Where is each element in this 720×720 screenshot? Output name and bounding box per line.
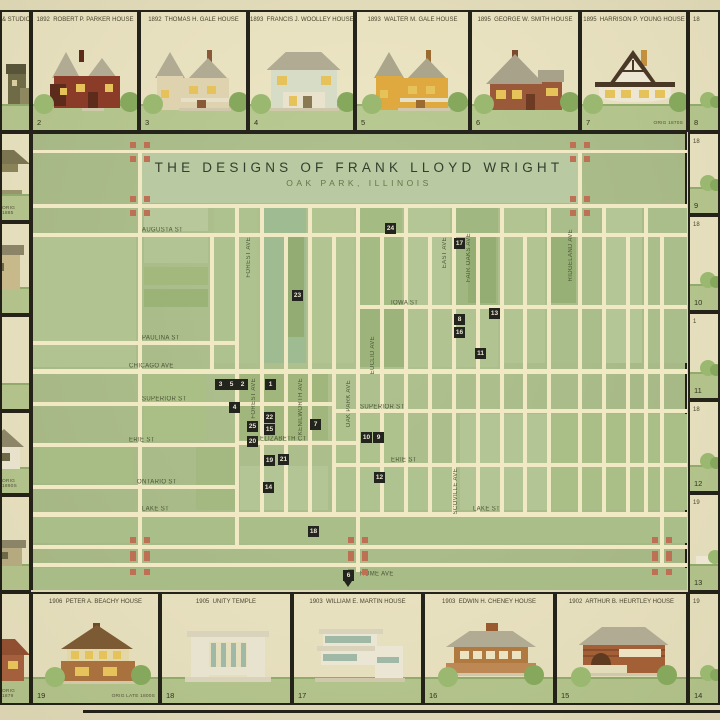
street [578, 150, 582, 516]
house-part [708, 550, 720, 564]
house-illustration [183, 623, 273, 687]
corner-ornament [652, 569, 658, 575]
corner-ornament [570, 196, 576, 202]
house-part [710, 669, 720, 681]
street [33, 545, 687, 549]
house-marker-19: 19 [264, 455, 275, 466]
house-part [34, 94, 54, 114]
street [428, 233, 432, 514]
cell-number: 5 [361, 118, 365, 127]
house-part [710, 457, 720, 469]
street [210, 233, 214, 373]
house-part [380, 90, 388, 98]
street-label: RIDGELAND AVE [568, 229, 574, 281]
cell-4: 1893 FRANCIS J. WOOLLEY HOUSE4 [248, 10, 355, 132]
house-marker-17: 17 [454, 238, 465, 249]
house-illustration [2, 413, 31, 477]
city-block [144, 373, 206, 440]
street-label: FAIR OAKS AVE [466, 233, 472, 282]
house-part [52, 52, 80, 78]
house-marker-7: 7 [310, 419, 321, 430]
house-caption: 19 [693, 599, 718, 605]
cell-19: 1906 PETER A. BEACHY HOUSE19ORIG LATE 18… [31, 592, 160, 705]
house-part [0, 351, 1, 365]
house-part [189, 86, 198, 94]
house-part [560, 92, 580, 112]
cell-3: 1892 THOMAS H. GALE HOUSE3 [139, 10, 248, 132]
house-part [269, 108, 339, 111]
house-marker-8: 8 [454, 314, 465, 325]
cell-note: ORIG LATE 1800S [112, 694, 155, 699]
corner-ornament [144, 569, 150, 575]
house-part [0, 639, 30, 655]
house-part [655, 90, 665, 98]
house-part [408, 86, 417, 94]
house-illustration [690, 230, 720, 294]
house-caption: 18 [693, 17, 718, 23]
house-part [499, 651, 508, 659]
corner-ornament [584, 196, 590, 202]
house-illustration [151, 50, 241, 114]
title-band: THE DESIGNS OF FRANK LLOYD WRIGHT OAK PA… [140, 153, 578, 203]
city-block [648, 208, 687, 363]
house-part [277, 76, 287, 85]
house-part [120, 92, 139, 112]
city-block [196, 447, 235, 510]
corner-ornament [584, 210, 590, 216]
corner-ornament [584, 156, 590, 162]
house-part [512, 90, 522, 99]
corner-ornament [144, 196, 150, 202]
house-part [486, 54, 544, 84]
street [33, 150, 687, 153]
house-part [105, 84, 113, 92]
cell-14: 1914 [688, 592, 720, 705]
cell-18: 1905 UNITY TEMPLE18 [160, 592, 292, 705]
house-part [571, 667, 591, 687]
house-part [446, 631, 536, 647]
house-part [231, 643, 236, 667]
cell-number: 19 [37, 691, 45, 700]
house-part [583, 94, 603, 114]
house-illustration [690, 510, 720, 574]
cell-number: 7 [586, 118, 590, 127]
house-illustration [591, 50, 681, 114]
house-marker-25: 25 [247, 421, 258, 432]
house-part [337, 92, 356, 112]
house-marker-14: 14 [263, 482, 274, 493]
street-label: FOREST AVE [246, 237, 252, 278]
house-part [377, 657, 399, 663]
house-caption: & STUDIO [2, 17, 27, 23]
cell-note: ORIG 1879 [2, 689, 26, 699]
street-label: KENILWORTH AVE [298, 378, 304, 435]
street [332, 463, 687, 467]
house-marker-18: 18 [308, 526, 319, 537]
house-part [45, 667, 65, 687]
bottom-edge-line [83, 710, 720, 713]
corner-ornament [130, 156, 136, 162]
house-part [323, 654, 357, 661]
cell-10: 1810 [688, 215, 720, 312]
street [404, 204, 408, 514]
cell-number: 11 [694, 386, 702, 395]
house-part [57, 681, 139, 684]
cell-l1: ORIG 1885 [0, 132, 31, 222]
street-label: IOWA ST [391, 300, 418, 307]
city-block [144, 237, 208, 263]
house-marker-1: 1 [265, 379, 276, 390]
house-part [374, 52, 404, 78]
cell-5: 1893 WALTER M. GALE HOUSE5 [355, 10, 470, 132]
house-part [2, 453, 10, 461]
house-marker-10: 10 [361, 432, 372, 443]
cell-l4: ORIG 1890S [0, 411, 31, 495]
cell-number: 17 [298, 691, 306, 700]
house-caption: 1902 ARTHUR B. HEURTLEY HOUSE [557, 599, 686, 605]
cell-l3 [0, 315, 31, 411]
street [626, 233, 630, 514]
street [500, 204, 504, 514]
cell-13: 1913 [688, 493, 720, 592]
house-part [251, 94, 271, 114]
cell-number: 6 [476, 118, 480, 127]
house-part [376, 76, 402, 86]
house-part [315, 678, 405, 682]
house-part [486, 651, 495, 659]
house-marker-21: 21 [278, 454, 289, 465]
city-block [468, 237, 496, 303]
corner-ornament [570, 142, 576, 148]
house-marker-3: 3 [215, 379, 226, 390]
house-illustration [0, 329, 31, 393]
cell-number: 2 [37, 118, 41, 127]
house-caption: 1895 HARRISON P. YOUNG HOUSE [582, 17, 686, 23]
house-illustration [690, 50, 720, 114]
cell-2: 1892 ROBERT P. PARKER HOUSE2 [31, 10, 139, 132]
corner-ornament [666, 569, 672, 575]
house-part [0, 552, 8, 559]
house-caption: 1892 THOMAS H. GALE HOUSE [141, 17, 246, 23]
house-part [0, 263, 4, 271]
house-part [321, 76, 331, 85]
corner-ornament [130, 210, 136, 216]
cell-number: 10 [694, 298, 702, 307]
house-marker-12: 12 [374, 472, 385, 483]
cell-number: 8 [694, 118, 698, 127]
cell-15: 1902 ARTHUR B. HEURTLEY HOUSE15 [555, 592, 688, 705]
street [138, 150, 142, 567]
city-block [33, 445, 133, 483]
street [547, 204, 551, 514]
house-part [486, 623, 498, 631]
house-part [438, 667, 458, 687]
cell-l2 [0, 222, 31, 315]
house-caption: 1905 UNITY TEMPLE [162, 599, 290, 605]
house-part [82, 108, 104, 111]
street [284, 233, 288, 514]
city-block [33, 237, 136, 367]
cell-studio: & STUDIO [0, 10, 31, 132]
poster: THE DESIGNS OF FRANK LLOYD WRIGHT OAK PA… [0, 0, 720, 720]
house-caption: 18 [693, 407, 718, 413]
street [356, 512, 360, 572]
house-part [187, 58, 229, 80]
house-part [289, 96, 297, 106]
house-part [657, 665, 677, 685]
street-label: PAULINA ST [142, 335, 180, 342]
house-caption: 18 [693, 222, 718, 228]
house-part [406, 58, 448, 80]
house-marker-5: 5 [226, 379, 237, 390]
house-part [446, 663, 536, 673]
house-part [207, 86, 216, 94]
street-label: OAK PARK AVE [346, 380, 352, 427]
corner-ornament [652, 537, 658, 543]
corner-ornament [348, 537, 354, 543]
house-caption: 1895 GEORGE W. SMITH HOUSE [472, 17, 578, 23]
corner-ornament [666, 537, 672, 543]
street-label: SUPERIOR ST [360, 404, 405, 411]
street [476, 233, 480, 514]
street-label: SCOVILLE AVE [453, 468, 459, 514]
cell-16: 1903 EDWIN H. CHENEY HOUSE16 [423, 592, 555, 705]
house-marker-24: 24 [385, 223, 396, 234]
street [523, 233, 527, 514]
corner-ornament [130, 142, 136, 148]
house-part [0, 255, 20, 289]
cell-11: 111 [688, 312, 720, 400]
house-part [191, 635, 209, 677]
house-part [474, 94, 494, 114]
house-part [20, 88, 31, 104]
house-part [710, 179, 720, 191]
house-part [61, 661, 135, 683]
house-illustration [690, 623, 720, 687]
house-part [325, 636, 371, 643]
street-label: EUCLID AVE [370, 336, 376, 374]
house-illustration [2, 623, 31, 687]
house-part [88, 92, 98, 108]
house-part [303, 96, 312, 108]
house-part [155, 52, 185, 78]
house-part [538, 70, 564, 82]
house-part [143, 94, 163, 114]
house-part [632, 60, 634, 72]
house-part [247, 635, 265, 677]
house-caption: 1893 WALTER M. GALE HOUSE [357, 17, 468, 23]
house-illustration [2, 233, 31, 297]
street-label: LAKE ST [142, 506, 169, 513]
house-illustration [690, 411, 720, 475]
house-part [426, 86, 435, 94]
house-part [183, 78, 229, 110]
house-marker-15: 15 [264, 424, 275, 435]
street [660, 233, 664, 567]
house-caption: 1893 FRANCIS J. WOOLLEY HOUSE [250, 17, 353, 23]
corner-ornament [570, 156, 576, 162]
house-part [60, 88, 67, 95]
street [260, 204, 264, 514]
house-part [0, 164, 18, 172]
house-part [131, 665, 151, 685]
house-part [579, 627, 669, 645]
city-block [460, 414, 548, 510]
house-illustration [2, 50, 31, 114]
house-part [267, 52, 341, 70]
cell-l5 [0, 495, 31, 592]
city-block [336, 467, 456, 510]
house-part [0, 540, 26, 548]
street-label: AUGUSTA ST [142, 227, 183, 234]
house-illustration [315, 623, 405, 687]
house-illustration [690, 318, 720, 382]
house-caption: 19 [693, 500, 718, 506]
street-label: SUPERIOR ST [142, 396, 187, 403]
house-part [542, 82, 562, 110]
house-part [241, 643, 246, 667]
street-label: ERIE ST [129, 437, 155, 444]
city-block [144, 267, 208, 285]
house-part [448, 92, 468, 112]
street-label: ONTARIO ST [137, 479, 177, 486]
house-part [473, 651, 482, 659]
house-part [221, 643, 226, 667]
house-part [185, 677, 271, 682]
house-part [710, 276, 720, 288]
house-part [85, 651, 93, 659]
cell-bl: ORIG 1879 [0, 592, 31, 705]
house-part [639, 90, 649, 98]
house-illustration [446, 623, 536, 687]
street-label: LAKE ST [473, 506, 500, 513]
house-part [398, 108, 450, 111]
house-illustration [2, 140, 31, 204]
cell-number: 12 [694, 479, 702, 488]
house-part [75, 667, 89, 676]
street-label: EAST AVE [442, 237, 448, 268]
corner-ornament [570, 210, 576, 216]
house-part [76, 84, 85, 92]
cell-17: 1903 WILLIAM E. MARTIN HOUSE17 [292, 592, 423, 705]
street [235, 204, 239, 547]
house-part [157, 76, 183, 86]
house-part [446, 673, 536, 676]
house-part [229, 92, 249, 112]
cell-number: 14 [694, 691, 702, 700]
house-part [209, 667, 247, 675]
house-part [0, 429, 24, 447]
house-part [99, 651, 107, 659]
corner-ornament [144, 156, 150, 162]
cell-7: 1895 HARRISON P. YOUNG HOUSE7ORIG 1870S [580, 10, 688, 132]
street-label: FOREST AVE [251, 378, 257, 419]
corner-ornament [362, 537, 368, 543]
house-part [710, 364, 720, 376]
city-block [606, 208, 642, 363]
cell-number: 9 [694, 201, 698, 210]
house-part [402, 78, 448, 110]
house-part [546, 88, 558, 96]
house-part [524, 665, 544, 685]
house-illustration [259, 50, 349, 114]
house-marker-16: 16 [454, 327, 465, 338]
street-label: CHICAGO AVE [129, 363, 174, 370]
cell-12: 1812 [688, 400, 720, 493]
house-part [0, 150, 30, 164]
house-marker-23: 23 [292, 290, 303, 301]
house-part [669, 92, 688, 112]
street [644, 204, 648, 514]
house-part [0, 245, 24, 255]
cell-number: 13 [694, 578, 702, 587]
house-part [496, 90, 506, 99]
house-marker-11: 11 [475, 348, 486, 359]
house-part [209, 637, 247, 642]
corner-ornament [144, 555, 150, 561]
house-part [526, 94, 535, 110]
house-caption: 1892 ROBERT P. PARKER HOUSE [33, 17, 137, 23]
cell-9: 189 [688, 132, 720, 215]
house-part [512, 651, 521, 659]
cell-6: 1895 GEORGE W. SMITH HOUSE6 [470, 10, 580, 132]
home-ave-arrow [344, 581, 352, 587]
house-illustration [579, 623, 669, 687]
street [33, 563, 687, 567]
house-illustration [482, 50, 572, 114]
street-label: ERIE ST [391, 457, 417, 464]
house-part [71, 651, 79, 659]
house-marker-4: 4 [229, 402, 240, 413]
corner-ornament [584, 142, 590, 148]
house-part [161, 90, 169, 98]
street [308, 204, 312, 514]
city-block [144, 289, 208, 307]
cell-note: ORIG 1885 [2, 206, 26, 216]
house-caption: 1903 EDWIN H. CHENEY HOUSE [425, 599, 553, 605]
corner-ornament [348, 555, 354, 561]
house-illustration [370, 50, 460, 114]
corner-ornament [362, 569, 368, 575]
house-marker-2: 2 [237, 379, 248, 390]
cell-number: 15 [561, 691, 569, 700]
corner-ornament [130, 569, 136, 575]
house-marker-13: 13 [489, 308, 500, 319]
house-illustration [53, 623, 143, 687]
corner-ornament [144, 142, 150, 148]
street-label: ELIZABETH CT [260, 436, 307, 443]
house-part [362, 94, 382, 114]
house-caption: 1906 PETER A. BEACHY HOUSE [33, 599, 158, 605]
street [33, 485, 237, 489]
house-part [12, 80, 17, 86]
house-part [0, 190, 22, 194]
corner-ornament [362, 555, 368, 561]
corner-ornament [144, 210, 150, 216]
cell-note: ORIG 1870S [654, 121, 683, 126]
cell-8: 188 [688, 10, 720, 132]
corner-ornament [652, 555, 658, 561]
cell-note: ORIG 1890S [2, 479, 26, 489]
house-part [6, 64, 26, 74]
house-part [211, 643, 216, 667]
corner-ornament [130, 537, 136, 543]
corner-ornament [130, 555, 136, 561]
corner-ornament [130, 196, 136, 202]
house-illustration [2, 510, 31, 574]
house-caption: 1903 WILLIAM E. MARTIN HOUSE [294, 599, 421, 605]
cell-number: 3 [145, 118, 149, 127]
